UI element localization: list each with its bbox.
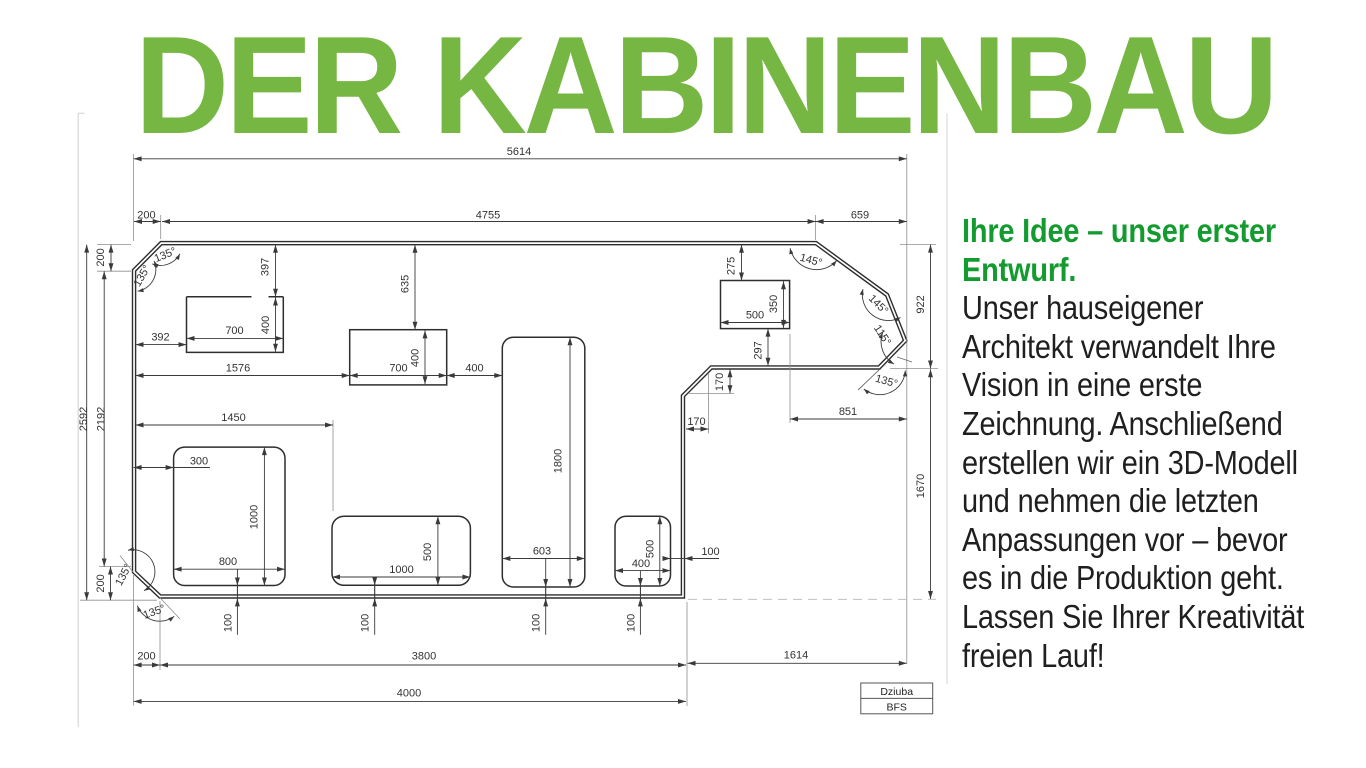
svg-text:115°: 115° [871, 323, 893, 348]
svg-text:659: 659 [851, 210, 869, 222]
svg-text:635: 635 [400, 275, 412, 293]
svg-text:5614: 5614 [507, 146, 531, 158]
svg-text:135°: 135° [874, 373, 899, 391]
svg-text:1450: 1450 [221, 412, 245, 424]
svg-text:170: 170 [714, 373, 726, 391]
svg-text:135°: 135° [153, 245, 179, 265]
svg-text:100: 100 [531, 614, 543, 632]
svg-text:800: 800 [219, 556, 237, 568]
svg-text:400: 400 [260, 316, 272, 334]
svg-text:3800: 3800 [412, 651, 436, 663]
svg-text:100: 100 [625, 614, 637, 632]
svg-text:392: 392 [151, 331, 169, 343]
svg-text:100: 100 [360, 614, 372, 632]
svg-text:397: 397 [259, 258, 271, 276]
svg-text:500: 500 [422, 543, 434, 561]
svg-text:135°: 135° [113, 562, 134, 588]
svg-text:135°: 135° [142, 603, 167, 622]
svg-text:4000: 4000 [397, 687, 421, 699]
svg-text:1576: 1576 [226, 362, 250, 374]
svg-text:500: 500 [645, 540, 657, 558]
svg-text:851: 851 [839, 406, 857, 418]
svg-text:350: 350 [768, 295, 780, 313]
svg-text:145°: 145° [866, 293, 891, 318]
svg-text:170: 170 [687, 416, 705, 428]
svg-text:603: 603 [533, 545, 551, 557]
svg-text:1800: 1800 [553, 449, 565, 473]
svg-text:100: 100 [222, 614, 234, 632]
svg-text:200: 200 [137, 651, 155, 663]
svg-text:1670: 1670 [915, 474, 927, 498]
svg-text:200: 200 [95, 248, 107, 266]
svg-text:200: 200 [137, 210, 155, 222]
svg-text:BFS: BFS [886, 702, 906, 714]
svg-text:400: 400 [410, 349, 422, 367]
svg-text:297: 297 [752, 341, 764, 359]
svg-text:1000: 1000 [248, 505, 260, 529]
svg-text:4755: 4755 [476, 210, 500, 222]
svg-text:2192: 2192 [96, 407, 108, 431]
svg-text:500: 500 [746, 309, 764, 321]
svg-text:275: 275 [725, 257, 737, 275]
svg-text:700: 700 [389, 362, 407, 374]
svg-text:100: 100 [701, 546, 719, 558]
svg-text:700: 700 [225, 325, 243, 337]
svg-text:2592: 2592 [78, 407, 90, 431]
svg-text:922: 922 [915, 295, 927, 313]
svg-text:200: 200 [95, 574, 107, 592]
svg-text:145°: 145° [798, 252, 823, 270]
svg-text:300: 300 [190, 455, 208, 467]
svg-text:400: 400 [465, 362, 483, 374]
svg-text:Dziuba: Dziuba [880, 686, 913, 698]
svg-text:1614: 1614 [784, 649, 808, 661]
svg-text:1000: 1000 [389, 564, 413, 576]
svg-text:400: 400 [632, 558, 650, 570]
